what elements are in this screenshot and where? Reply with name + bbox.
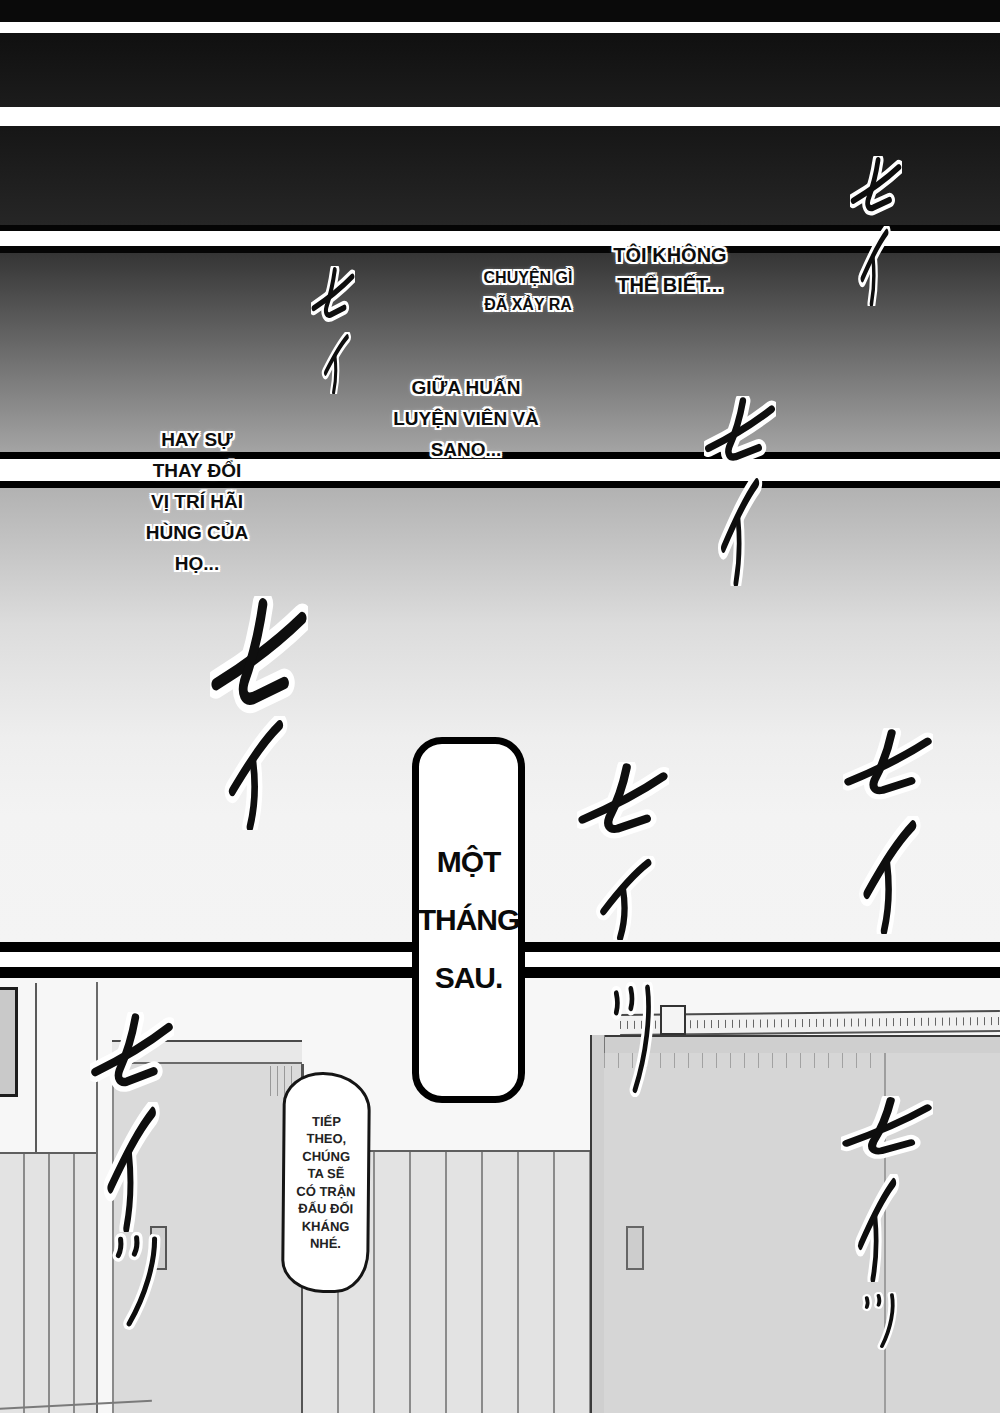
wall-corner-line xyxy=(35,983,37,1153)
narration-caption-3: GIỮA HUẤNLUYỆN VIÊN VÀSANO... xyxy=(386,372,546,465)
sliding-door-top-frame xyxy=(590,1035,1000,1055)
panel-border-line xyxy=(0,225,1000,231)
text-line: TÔI KHÔNG xyxy=(600,240,740,270)
narration-caption-4: HAY SỰTHAY ĐỔIVỊ TRÍ HÃIHÙNG CỦAHỌ... xyxy=(130,424,264,579)
narration-caption-2: CHUYỆN GÌĐÃ XẢY RA xyxy=(460,264,596,318)
text-line: THAY ĐỔI xyxy=(130,455,264,486)
text-line: CHUYỆN GÌ xyxy=(460,264,596,291)
text-line: TA SẼ xyxy=(308,1165,345,1183)
wainscot-panel-left xyxy=(0,1152,97,1413)
text-line: LUYỆN VIÊN VÀ xyxy=(386,403,546,434)
text-line: THÁNG xyxy=(418,891,520,949)
wall-frame xyxy=(0,987,18,1097)
top-black-band-2 xyxy=(0,33,1000,107)
text-line: CÓ TRẬN xyxy=(296,1182,355,1200)
left-door-handle xyxy=(150,1226,167,1270)
text-line: SAU. xyxy=(435,949,503,1007)
sliding-door-left-frame xyxy=(590,1035,605,1413)
sliding-door-top-hatch xyxy=(604,1053,884,1068)
manga-page: TÔI KHÔNGTHỂ BIẾT... CHUYỆN GÌĐÃ XẢY RA … xyxy=(0,0,1000,1413)
text-line: VỊ TRÍ HÃI xyxy=(130,486,264,517)
time-skip-bubble: MỘTTHÁNGSAU. xyxy=(412,737,525,1103)
text-line: ĐÃ XẢY RA xyxy=(460,291,596,318)
text-line: THỂ BIẾT... xyxy=(600,270,740,300)
door-jamb-line xyxy=(96,982,98,1413)
panel-border-line xyxy=(0,246,1000,253)
text-line: GIỮA HUẤN xyxy=(386,372,546,403)
narration-caption-1: TÔI KHÔNGTHỂ BIẾT... xyxy=(600,240,740,300)
text-line: HAY SỰ xyxy=(130,424,264,455)
gradient-band-upper xyxy=(0,126,1000,225)
text-line: HỌ... xyxy=(130,548,264,579)
text-line: THEO, xyxy=(306,1130,346,1148)
text-line: SANO... xyxy=(386,434,546,465)
text-line: ĐẤU ĐỐI xyxy=(298,1200,353,1218)
top-black-band-1 xyxy=(0,0,1000,22)
sliding-door-divider xyxy=(884,1053,886,1413)
text-line: MỘT xyxy=(437,833,501,891)
left-door-panel xyxy=(112,1064,304,1413)
sliding-door-handle xyxy=(626,1226,644,1270)
left-door-top-frame xyxy=(112,1040,302,1064)
text-line: KHÁNG xyxy=(302,1217,350,1235)
text-line: CHÚNG xyxy=(302,1147,350,1165)
text-line: TIẾP xyxy=(312,1112,341,1130)
speech-bubble: TIẾPTHEO,CHÚNGTA SẼCÓ TRẬNĐẤU ĐỐIKHÁNGNH… xyxy=(281,1072,371,1294)
rail-roller-box xyxy=(660,1005,686,1035)
text-line: HÙNG CỦA xyxy=(130,517,264,548)
sliding-door-panel xyxy=(604,1053,1000,1413)
text-line: NHÉ. xyxy=(310,1235,341,1253)
